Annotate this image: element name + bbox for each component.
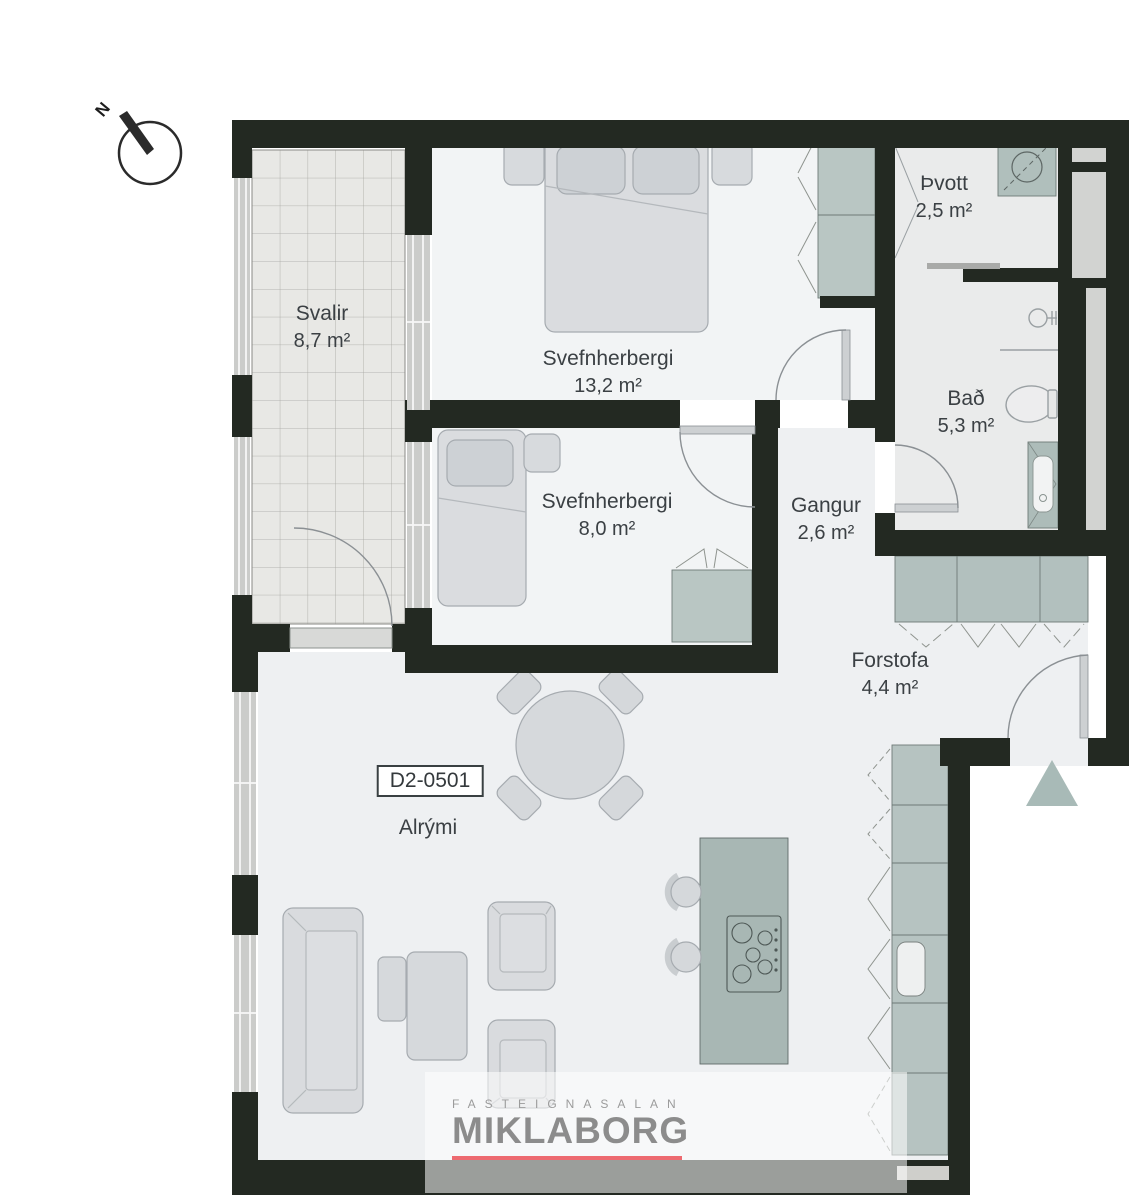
label-bad: Bað 5,3 m² — [938, 385, 995, 439]
wardrobe-bedroom2 — [672, 570, 752, 642]
miklaborg-logo: FASTEIGNASALAN MIKLABORG — [425, 1072, 907, 1193]
wardrobe-bedroom1 — [818, 132, 875, 298]
logo-underline — [452, 1156, 682, 1160]
kitchen-sink-icon — [897, 942, 925, 996]
compass-north-label: N — [92, 99, 114, 121]
bedroom2-door-leaf — [680, 426, 755, 434]
label-gangur: Gangur 2,6 m² — [791, 492, 861, 546]
label-svefnherbergi-2: Svefnherbergi 8,0 m² — [542, 488, 673, 542]
logo-tagline: FASTEIGNASALAN — [452, 1097, 907, 1111]
label-svefnherbergi-1: Svefnherbergi 13,2 m² — [543, 345, 674, 399]
floorplan-page: N Svalir 8,7 m² Svefnherbergi 13,2 m² Þv… — [0, 0, 1129, 1200]
compass-icon: N — [92, 99, 181, 184]
entry-arrow-icon — [1026, 760, 1078, 806]
armchair-1 — [488, 902, 555, 990]
balcony-door-sill — [290, 628, 392, 648]
kitchen-island — [700, 838, 788, 1064]
label-forstofa: Forstofa 4,4 m² — [851, 647, 928, 701]
dining-table — [516, 691, 624, 799]
label-svalir: Svalir 8,7 m² — [294, 300, 351, 354]
sofa — [283, 908, 363, 1113]
dining-set — [494, 667, 645, 822]
bath-sink-icon — [1028, 442, 1058, 528]
entry-door-leaf — [1080, 655, 1088, 738]
label-alrymi: Alrými — [399, 814, 457, 842]
bath-door-leaf — [895, 504, 958, 512]
logo-brand: MIKLABORG — [452, 1111, 907, 1151]
entry-closets — [895, 556, 1088, 622]
bedroom1-door-leaf — [842, 330, 850, 400]
label-thvott: Þvott 2,5 m² — [916, 170, 973, 224]
balcony-tiles — [252, 150, 405, 624]
unit-number-badge: D2-0501 — [377, 765, 484, 797]
